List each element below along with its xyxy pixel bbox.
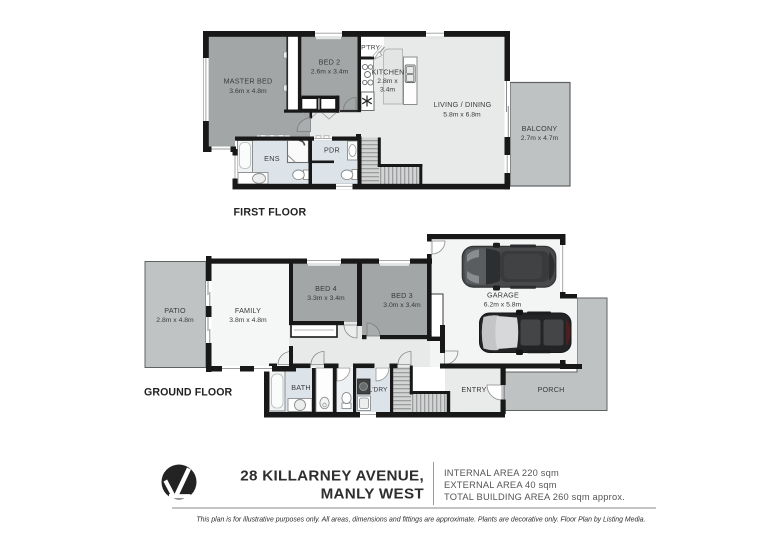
svg-text:GROUND FLOOR: GROUND FLOOR <box>144 387 233 399</box>
svg-text:This plan is for illustrative: This plan is for illustrative purposes o… <box>196 517 645 524</box>
svg-text:GARAGE: GARAGE <box>487 291 519 300</box>
svg-text:2.8m x: 2.8m x <box>377 78 398 85</box>
svg-text:FAMILY: FAMILY <box>235 306 261 315</box>
svg-text:28 KILLARNEY AVENUE,: 28 KILLARNEY AVENUE, <box>240 468 424 485</box>
svg-text:2.6m x 3.4m: 2.6m x 3.4m <box>311 69 349 76</box>
svg-text:PORCH: PORCH <box>538 385 565 394</box>
svg-text:2.7m x 4.7m: 2.7m x 4.7m <box>521 135 559 142</box>
svg-text:PATIO: PATIO <box>164 306 186 315</box>
svg-text:3.8m x 4.8m: 3.8m x 4.8m <box>229 317 267 324</box>
svg-text:3.4m: 3.4m <box>380 87 395 94</box>
svg-text:TOTAL BUILDING AREA 260 sqm ap: TOTAL BUILDING AREA 260 sqm approx. <box>444 492 625 502</box>
svg-text:ENS: ENS <box>264 154 280 163</box>
svg-text:LIVING / DINING: LIVING / DINING <box>434 100 492 109</box>
svg-text:KITCHEN: KITCHEN <box>372 68 405 77</box>
svg-text:6.2m x 5.8m: 6.2m x 5.8m <box>484 302 522 309</box>
svg-text:MASTER BED: MASTER BED <box>224 77 273 86</box>
svg-text:2.8m x 4.8m: 2.8m x 4.8m <box>156 317 194 324</box>
svg-text:EXTERNAL AREA 40 sqm: EXTERNAL AREA 40 sqm <box>444 480 557 490</box>
svg-text:BATH: BATH <box>291 383 310 392</box>
svg-text:FIRST FLOOR: FIRST FLOOR <box>234 207 307 219</box>
svg-text:3.0m x 3.4m: 3.0m x 3.4m <box>383 302 421 309</box>
svg-text:L'DRY: L'DRY <box>369 387 388 394</box>
svg-text:3.3m x 3.4m: 3.3m x 3.4m <box>307 295 345 302</box>
svg-text:3.6m x 4.8m: 3.6m x 4.8m <box>229 88 267 95</box>
svg-text:BED 3: BED 3 <box>391 291 413 300</box>
svg-text:MANLY WEST: MANLY WEST <box>321 486 425 503</box>
svg-text:INTERNAL AREA 220 sqm: INTERNAL AREA 220 sqm <box>444 468 559 478</box>
svg-text:BED 4: BED 4 <box>315 284 337 293</box>
svg-text:BED 2: BED 2 <box>319 58 341 67</box>
svg-text:BALCONY: BALCONY <box>522 124 558 133</box>
svg-text:5.8m x 6.8m: 5.8m x 6.8m <box>443 111 481 118</box>
svg-text:PDR: PDR <box>324 146 340 155</box>
svg-text:ENTRY: ENTRY <box>461 385 486 394</box>
